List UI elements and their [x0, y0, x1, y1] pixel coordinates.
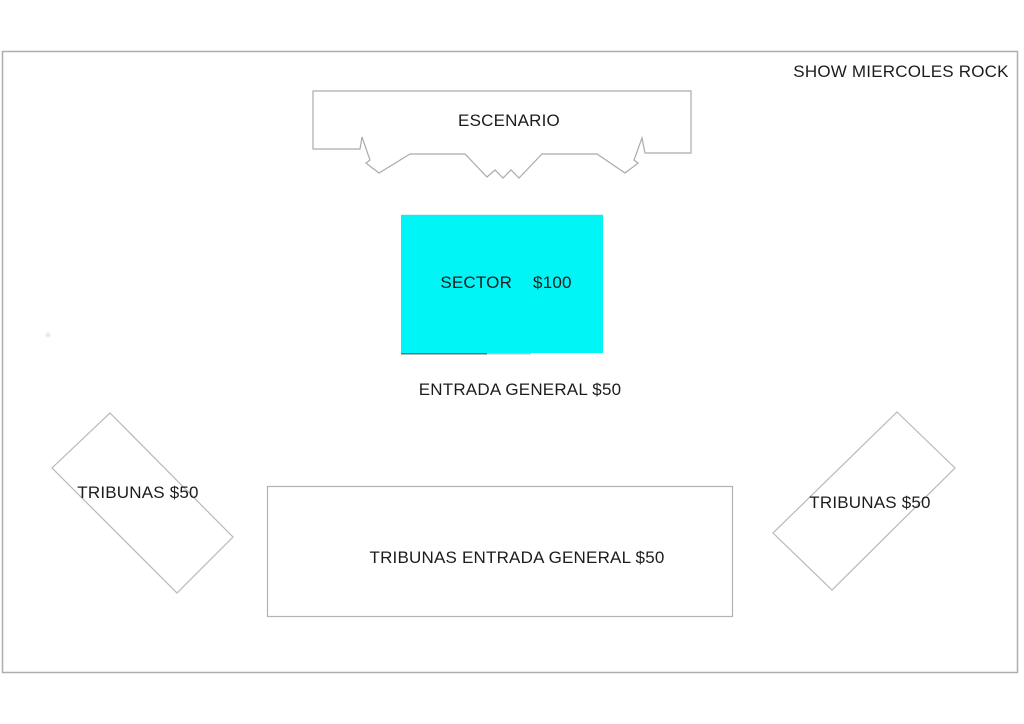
venue-map: SHOW MIERCOLES ROCK ESCENARIO SECTOR $10…: [0, 0, 1024, 724]
tribunas-entrada-general-label: TRIBUNAS ENTRADA GENERAL $50: [370, 548, 665, 568]
tribunas-right-label: TRIBUNAS $50: [809, 493, 930, 513]
show-title: SHOW MIERCOLES ROCK: [793, 62, 1008, 82]
sector-label: SECTOR: [440, 273, 512, 293]
venue-border: [3, 52, 1018, 673]
tribunas-left-shape[interactable]: [52, 413, 233, 593]
sector-label-group: SECTOR $100: [440, 273, 571, 293]
stage-shape: [313, 91, 691, 178]
tribunas-left-label: TRIBUNAS $50: [77, 483, 198, 503]
entrada-general-label: ENTRADA GENERAL $50: [419, 380, 622, 400]
stray-mark: [46, 333, 51, 338]
sector-price: $100: [533, 273, 572, 293]
venue-lines-layer: [0, 0, 1024, 724]
stage-label: ESCENARIO: [458, 111, 560, 131]
